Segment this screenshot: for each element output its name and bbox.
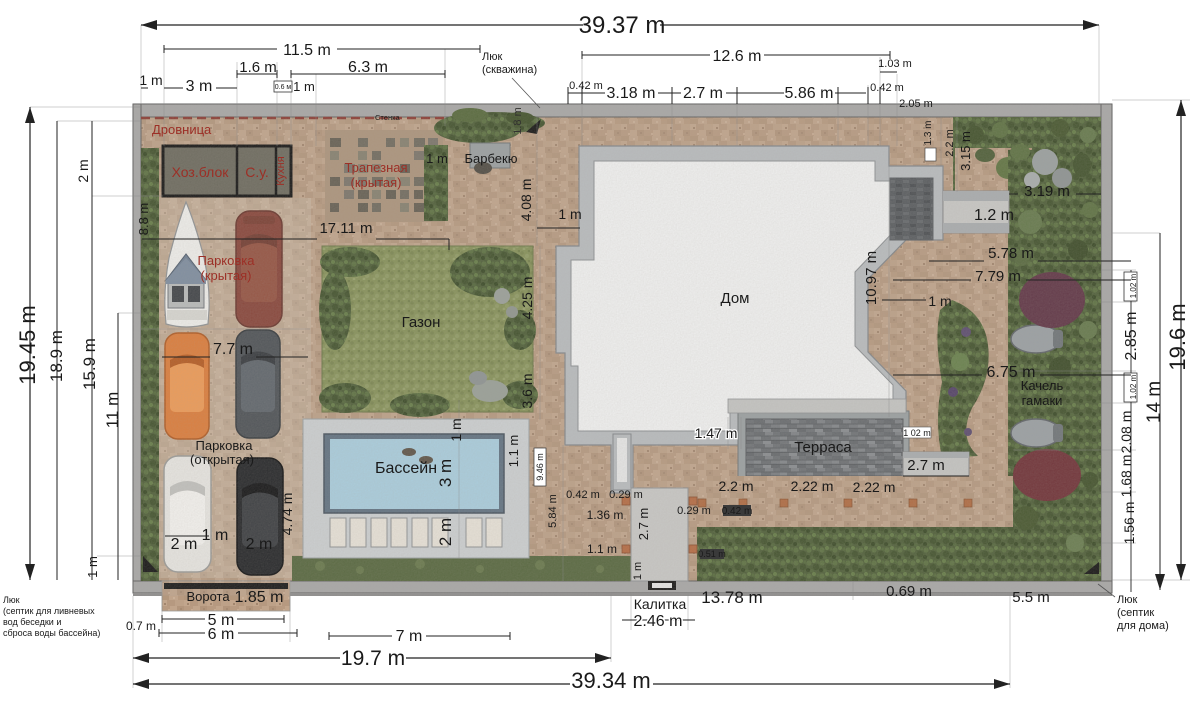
svg-text:0.42 m: 0.42 m bbox=[722, 506, 753, 517]
svg-text:2 m: 2 m bbox=[75, 159, 91, 182]
svg-text:2.85 m: 2.85 m bbox=[1123, 312, 1140, 361]
svg-text:6.75 m: 6.75 m bbox=[987, 364, 1036, 381]
svg-text:11.5 m: 11.5 m bbox=[283, 42, 331, 59]
svg-text:2.2 m: 2.2 m bbox=[944, 129, 956, 157]
svg-text:19.45 m: 19.45 m bbox=[15, 305, 40, 385]
svg-text:39.37 m: 39.37 m bbox=[579, 12, 666, 39]
svg-text:Дом: Дом bbox=[721, 290, 750, 307]
svg-text:0.7 m: 0.7 m bbox=[126, 619, 156, 633]
svg-text:2.22 m: 2.22 m bbox=[853, 479, 896, 495]
svg-text:0.29 m: 0.29 m bbox=[609, 489, 643, 501]
svg-text:3.15 m: 3.15 m bbox=[958, 131, 973, 171]
svg-text:2.05 m: 2.05 m bbox=[899, 98, 933, 110]
svg-text:10.97 m: 10.97 m bbox=[863, 251, 880, 305]
svg-text:2.22 m: 2.22 m bbox=[791, 478, 834, 494]
svg-text:2.08 m: 2.08 m bbox=[1118, 411, 1134, 454]
svg-text:1.03 m: 1.03 m bbox=[878, 58, 912, 70]
svg-text:1.02 m: 1.02 m bbox=[1129, 374, 1138, 399]
svg-text:1 02 m: 1 02 m bbox=[903, 428, 931, 438]
svg-text:18.9 m: 18.9 m bbox=[47, 330, 66, 382]
svg-text:2 m: 2 m bbox=[171, 536, 198, 553]
svg-text:1 m: 1 m bbox=[426, 151, 448, 166]
svg-text:Кухня: Кухня bbox=[275, 156, 287, 185]
svg-text:2.7 m: 2.7 m bbox=[907, 457, 945, 474]
svg-text:1 m: 1 m bbox=[202, 527, 229, 544]
svg-text:Люк: Люк bbox=[1117, 594, 1137, 606]
svg-text:1.6 m: 1.6 m bbox=[239, 59, 277, 76]
svg-text:0.51 m: 0.51 m bbox=[698, 549, 726, 559]
svg-text:(крытая): (крытая) bbox=[351, 175, 402, 190]
svg-text:5.84 m: 5.84 m bbox=[547, 494, 559, 528]
svg-text:3.6 m: 3.6 m bbox=[519, 373, 535, 408]
svg-text:1.2 m: 1.2 m bbox=[974, 207, 1014, 224]
svg-text:1 m: 1 m bbox=[293, 79, 315, 94]
svg-text:1.47 m: 1.47 m bbox=[695, 425, 738, 441]
svg-text:6 m: 6 m bbox=[208, 626, 235, 643]
svg-text:1.36 m: 1.36 m bbox=[587, 508, 624, 522]
svg-text:2.7 m: 2.7 m bbox=[636, 508, 651, 541]
svg-text:вод беседки и: вод беседки и bbox=[3, 617, 61, 627]
svg-text:1.56 m: 1.56 m bbox=[1121, 502, 1137, 545]
svg-text:1.02 m: 1.02 m bbox=[1129, 273, 1138, 298]
svg-text:5.5 m: 5.5 m bbox=[1012, 589, 1050, 606]
svg-text:8.8 m: 8.8 m bbox=[136, 203, 151, 236]
svg-text:11 m: 11 m bbox=[103, 392, 122, 429]
svg-text:4.74 m: 4.74 m bbox=[279, 493, 295, 536]
svg-text:0.29 m: 0.29 m bbox=[677, 505, 711, 517]
svg-text:1.1 m: 1.1 m bbox=[506, 435, 521, 468]
svg-text:Газон: Газон bbox=[402, 314, 441, 331]
svg-text:2.7 m: 2.7 m bbox=[683, 85, 723, 102]
svg-text:1.1 m: 1.1 m bbox=[587, 542, 617, 556]
svg-text:0.69 m: 0.69 m bbox=[886, 583, 932, 600]
svg-text:3 m: 3 m bbox=[186, 78, 213, 95]
svg-text:4.08 m: 4.08 m bbox=[518, 179, 534, 222]
svg-text:С.у.: С.у. bbox=[245, 164, 269, 180]
svg-text:5.86 m: 5.86 m bbox=[785, 85, 834, 102]
svg-text:1 m: 1 m bbox=[139, 72, 162, 88]
svg-text:2 m: 2 m bbox=[436, 518, 455, 546]
svg-text:Ворота: Ворота bbox=[186, 589, 230, 604]
svg-text:3.18 m: 3.18 m bbox=[607, 85, 656, 102]
svg-text:(септик: (септик bbox=[1117, 607, 1154, 619]
svg-text:0.6 м: 0.6 м bbox=[275, 84, 292, 91]
svg-text:1 m: 1 m bbox=[448, 418, 464, 441]
svg-text:19.6 m: 19.6 m bbox=[1165, 303, 1190, 370]
svg-text:4.25 m: 4.25 m bbox=[519, 277, 535, 320]
svg-text:2.46 m: 2.46 m bbox=[634, 613, 683, 630]
svg-text:39.34 m: 39.34 m bbox=[571, 668, 651, 693]
svg-text:0.42 m: 0.42 m bbox=[566, 489, 600, 501]
svg-text:7.7 m: 7.7 m bbox=[213, 341, 253, 358]
svg-text:19.7 m: 19.7 m bbox=[341, 647, 405, 670]
svg-text:1.85 m: 1.85 m bbox=[235, 589, 284, 606]
svg-text:1 m: 1 m bbox=[928, 293, 951, 309]
svg-text:Калитка: Калитка bbox=[634, 596, 687, 612]
svg-text:Люк: Люк bbox=[3, 595, 20, 605]
svg-text:Стенка: Стенка bbox=[375, 113, 401, 122]
svg-text:15.9 m: 15.9 m bbox=[80, 338, 99, 390]
svg-text:1.68 m: 1.68 m bbox=[1118, 455, 1134, 498]
svg-text:(септик для ливневых: (септик для ливневых bbox=[3, 606, 95, 616]
svg-text:Парковка: Парковка bbox=[196, 438, 254, 453]
svg-text:1 m: 1 m bbox=[558, 206, 581, 222]
svg-text:7 m: 7 m bbox=[396, 628, 423, 645]
svg-text:гамаки: гамаки bbox=[1022, 393, 1063, 408]
svg-text:сброса воды бассейна): сброса воды бассейна) bbox=[3, 628, 100, 638]
svg-text:Дровница: Дровница bbox=[152, 122, 212, 137]
svg-text:0.42 m: 0.42 m bbox=[870, 82, 904, 94]
svg-text:17.11 m: 17.11 m bbox=[319, 220, 372, 237]
svg-text:1 m: 1 m bbox=[632, 562, 644, 580]
svg-text:(открытая): (открытая) bbox=[190, 452, 254, 467]
svg-text:3 m: 3 m bbox=[436, 459, 455, 487]
svg-text:1.3 m: 1.3 m bbox=[923, 120, 934, 145]
svg-text:9.46 m: 9.46 m bbox=[535, 453, 545, 481]
svg-text:13.78 m: 13.78 m bbox=[701, 588, 762, 607]
svg-text:Терраса: Терраса bbox=[794, 439, 852, 456]
svg-text:2 m: 2 m bbox=[246, 536, 273, 553]
svg-text:для дома): для дома) bbox=[1117, 620, 1169, 632]
svg-text:14 m: 14 m bbox=[1144, 381, 1165, 423]
svg-text:0.42 m: 0.42 m bbox=[569, 80, 603, 92]
svg-text:Люк: Люк bbox=[482, 51, 502, 63]
svg-text:Трапезная: Трапезная bbox=[344, 160, 407, 175]
svg-text:Парковка: Парковка bbox=[198, 253, 256, 268]
svg-text:1 m: 1 m bbox=[85, 556, 100, 578]
svg-text:12.6 m: 12.6 m bbox=[713, 48, 762, 65]
svg-text:3.19 m: 3.19 m bbox=[1024, 183, 1070, 200]
svg-text:5.78 m: 5.78 m bbox=[988, 245, 1034, 262]
svg-text:(крытая): (крытая) bbox=[201, 268, 252, 283]
svg-text:7.79 m: 7.79 m bbox=[975, 268, 1021, 285]
svg-text:Барбекю: Барбекю bbox=[465, 151, 518, 166]
svg-text:2.2 m: 2.2 m bbox=[718, 478, 753, 494]
svg-text:Бассейн: Бассейн bbox=[375, 460, 437, 477]
svg-text:6.3 m: 6.3 m bbox=[348, 59, 388, 76]
svg-text:Хоз.блок: Хоз.блок bbox=[172, 164, 230, 180]
svg-text:(скважина): (скважина) bbox=[482, 64, 537, 76]
